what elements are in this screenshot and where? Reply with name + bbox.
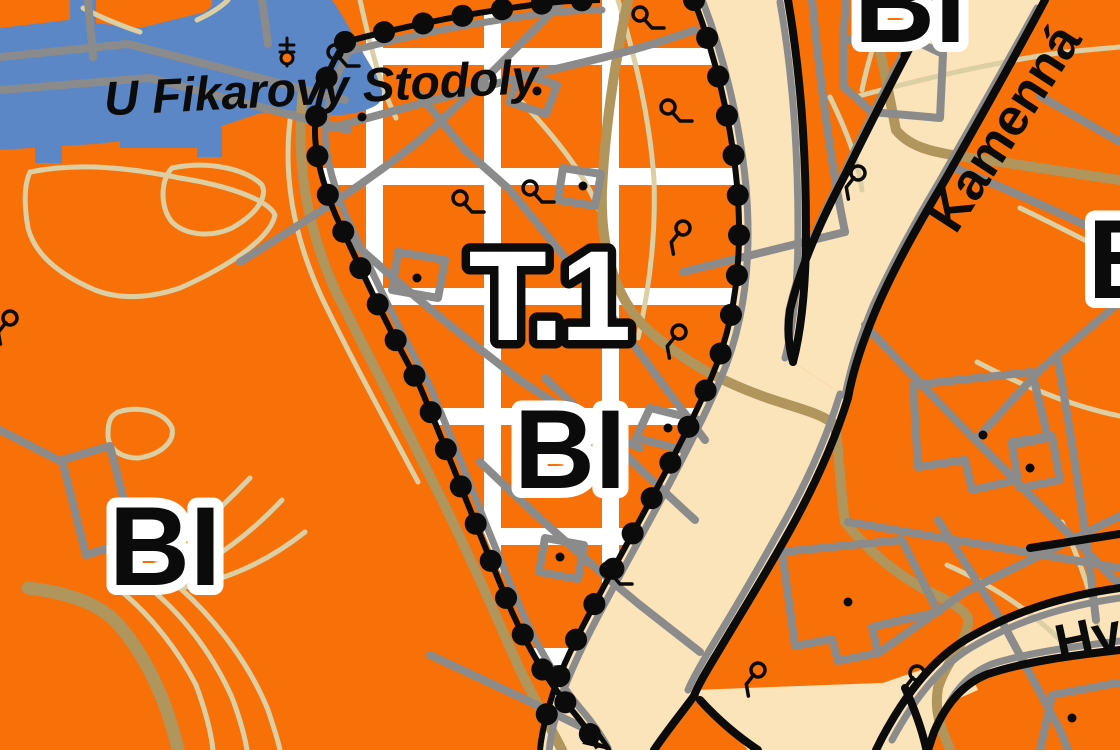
- zone-label-bi-top-right: BI: [854, 0, 966, 66]
- zone-label-b-right-partial: B: [1088, 197, 1120, 322]
- building-dot: [413, 274, 422, 283]
- building-dot: [1068, 714, 1077, 723]
- building-dot: [358, 113, 367, 122]
- building-dot: [579, 182, 588, 191]
- building-dot: [844, 598, 853, 607]
- map-canvas[interactable]: U Fikarovy Stodoly T.1 BI BI BI B Kamenn…: [0, 0, 1120, 750]
- building-dot: [556, 553, 565, 562]
- building-dot: [979, 431, 988, 440]
- building-dot: [1026, 464, 1035, 473]
- area-code-label-t1: T.1: [469, 225, 629, 368]
- zone-label-bi-center: BI: [514, 387, 626, 512]
- building-dot: [664, 424, 673, 433]
- zone-label-bi-left: BI: [109, 484, 221, 609]
